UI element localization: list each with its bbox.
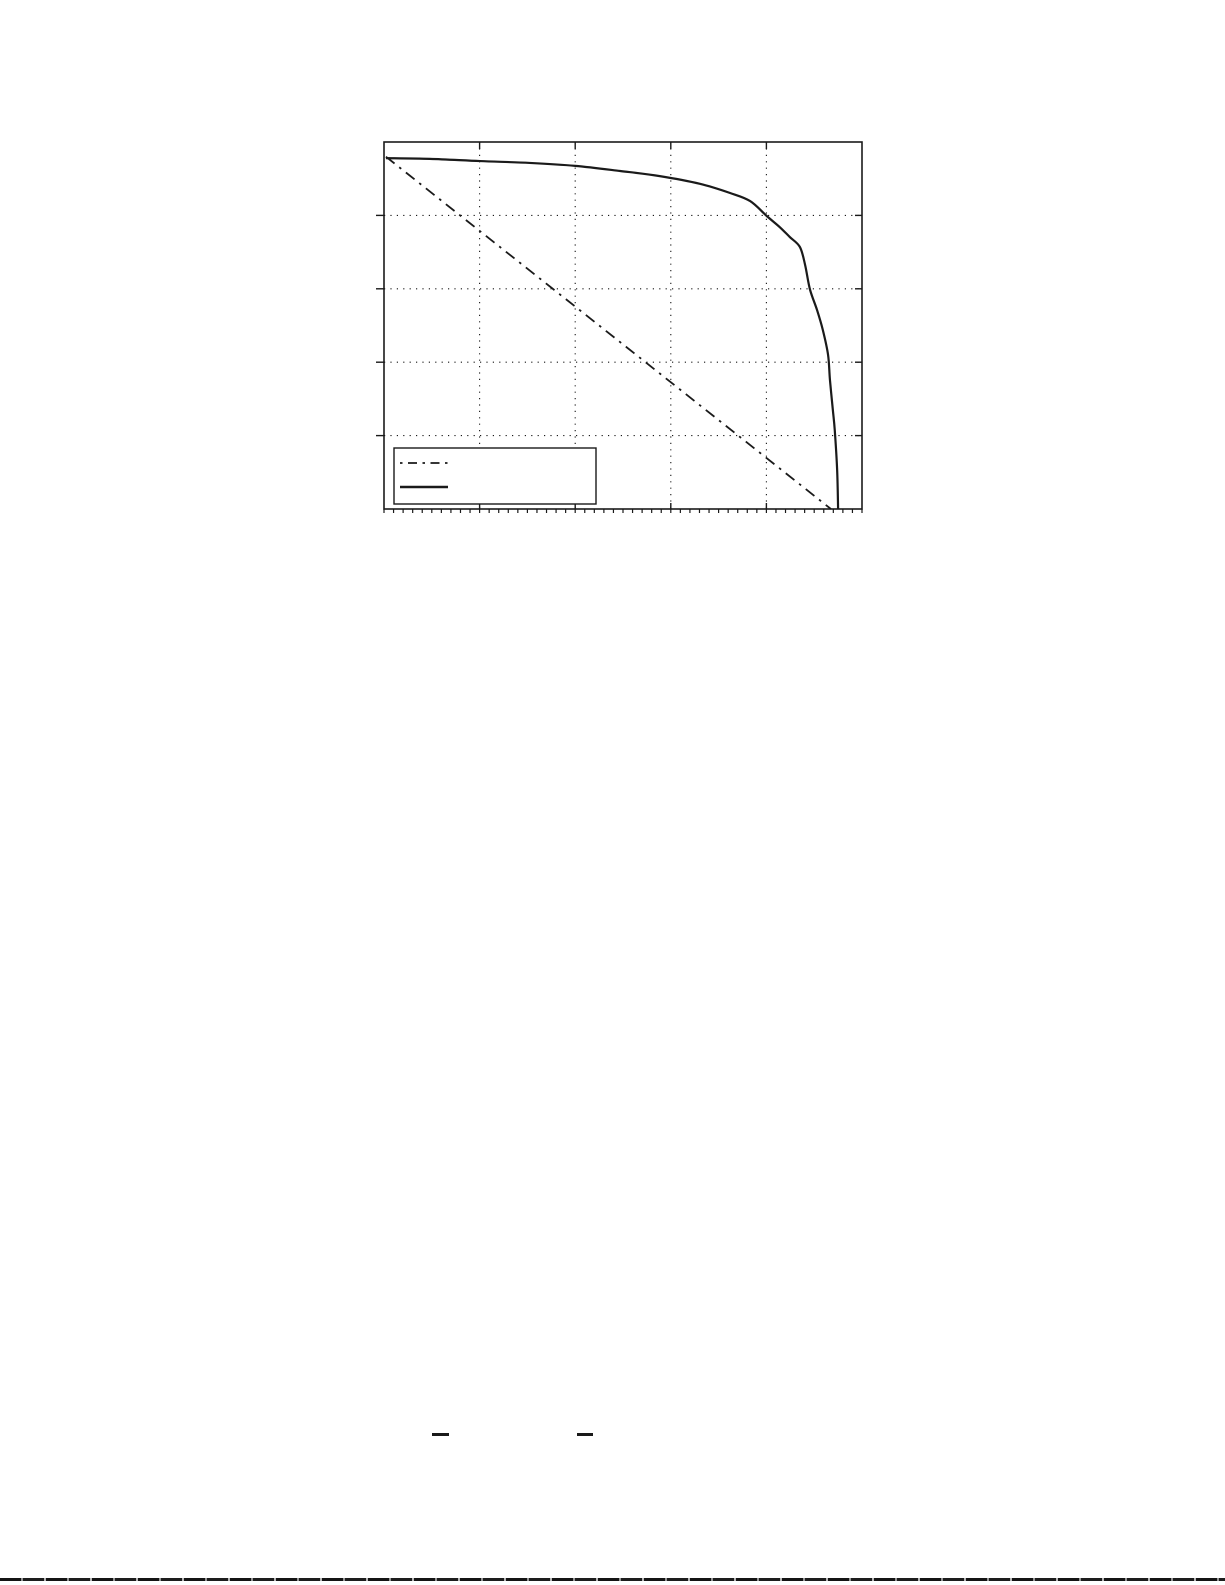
legend-box [394, 448, 596, 504]
scanned-paper-page [0, 0, 1225, 1585]
equation-fraction-bar-1 [432, 1433, 449, 1436]
equation-fraction-bar-2 [577, 1433, 593, 1436]
page-bottom-rule [0, 1578, 1225, 1581]
line-chart-figure [374, 132, 874, 522]
